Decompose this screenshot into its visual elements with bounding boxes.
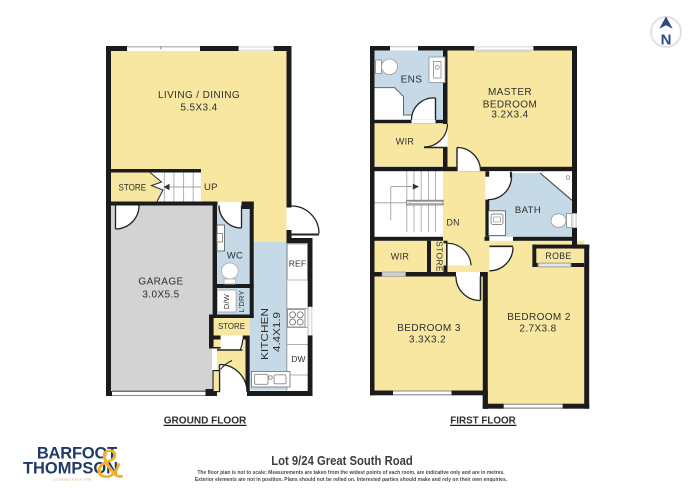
- svg-text:WIR: WIR: [396, 137, 415, 147]
- svg-text:WC: WC: [227, 251, 243, 262]
- svg-text:GARAGE: GARAGE: [138, 277, 183, 288]
- svg-text:BATH: BATH: [515, 205, 541, 216]
- svg-text:GROUND FLOOR: GROUND FLOOR: [164, 415, 247, 427]
- svg-text:FIRST FLOOR: FIRST FLOOR: [450, 415, 516, 427]
- svg-text:STORE: STORE: [435, 241, 445, 272]
- svg-text:The floor plan is not to scale: The floor plan is not to scale; Measurem…: [197, 470, 505, 476]
- svg-text:N: N: [661, 32, 672, 49]
- svg-text:MASTER: MASTER: [488, 87, 532, 98]
- svg-text:BEDROOM 3: BEDROOM 3: [397, 323, 461, 334]
- svg-text:LIVING / DINING: LIVING / DINING: [158, 90, 240, 101]
- svg-text:REF: REF: [289, 259, 307, 269]
- svg-text:4.4X1.9: 4.4X1.9: [272, 312, 283, 352]
- svg-text:ROBE: ROBE: [545, 251, 571, 261]
- svg-text:ENS: ENS: [401, 75, 423, 86]
- svg-text:Exterior elements are not in p: Exterior elements are not in position. P…: [195, 477, 508, 483]
- svg-text:KITCHEN: KITCHEN: [260, 308, 271, 360]
- svg-text:LICENSED REAA 2008: LICENSED REAA 2008: [53, 478, 92, 482]
- svg-text:2.7X3.8: 2.7X3.8: [519, 324, 556, 335]
- svg-text:D/W: D/W: [222, 293, 231, 309]
- svg-text:STORE: STORE: [218, 321, 245, 331]
- svg-text:DN: DN: [447, 217, 460, 227]
- svg-text:3.0X5.5: 3.0X5.5: [142, 290, 179, 301]
- svg-text:WIR: WIR: [391, 252, 410, 262]
- svg-text:Lot 9/24 Great South Road: Lot 9/24 Great South Road: [271, 453, 413, 468]
- svg-text:UP: UP: [204, 182, 218, 193]
- svg-text:DW: DW: [291, 354, 306, 364]
- svg-text:3.3X3.2: 3.3X3.2: [409, 335, 446, 346]
- svg-text:&: &: [96, 441, 123, 487]
- svg-text:3.2X3.4: 3.2X3.4: [491, 110, 528, 121]
- svg-text:STORE: STORE: [119, 183, 147, 193]
- svg-text:BEDROOM 2: BEDROOM 2: [507, 312, 571, 323]
- svg-text:L'DRY: L'DRY: [237, 290, 246, 312]
- svg-text:5.5X3.4: 5.5X3.4: [180, 103, 217, 114]
